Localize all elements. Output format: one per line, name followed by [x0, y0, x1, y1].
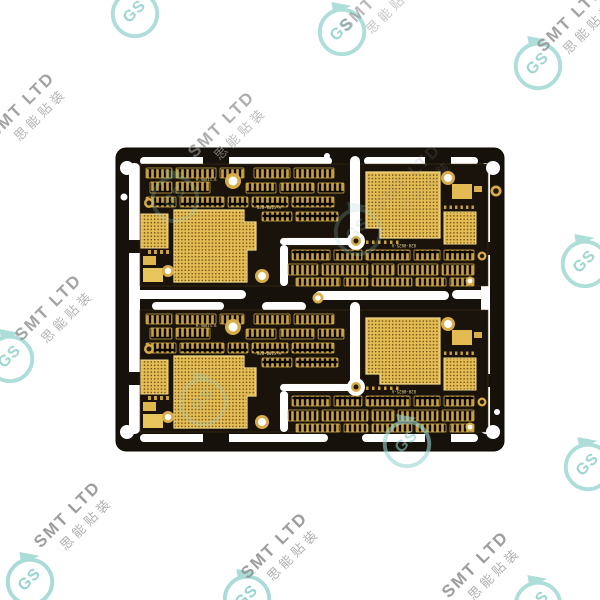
pcb-product-photo: M.90811-8 820-0025-A — [0, 0, 600, 600]
pcb-panel-image: M.90811-8 820-0025-A — [0, 0, 600, 600]
